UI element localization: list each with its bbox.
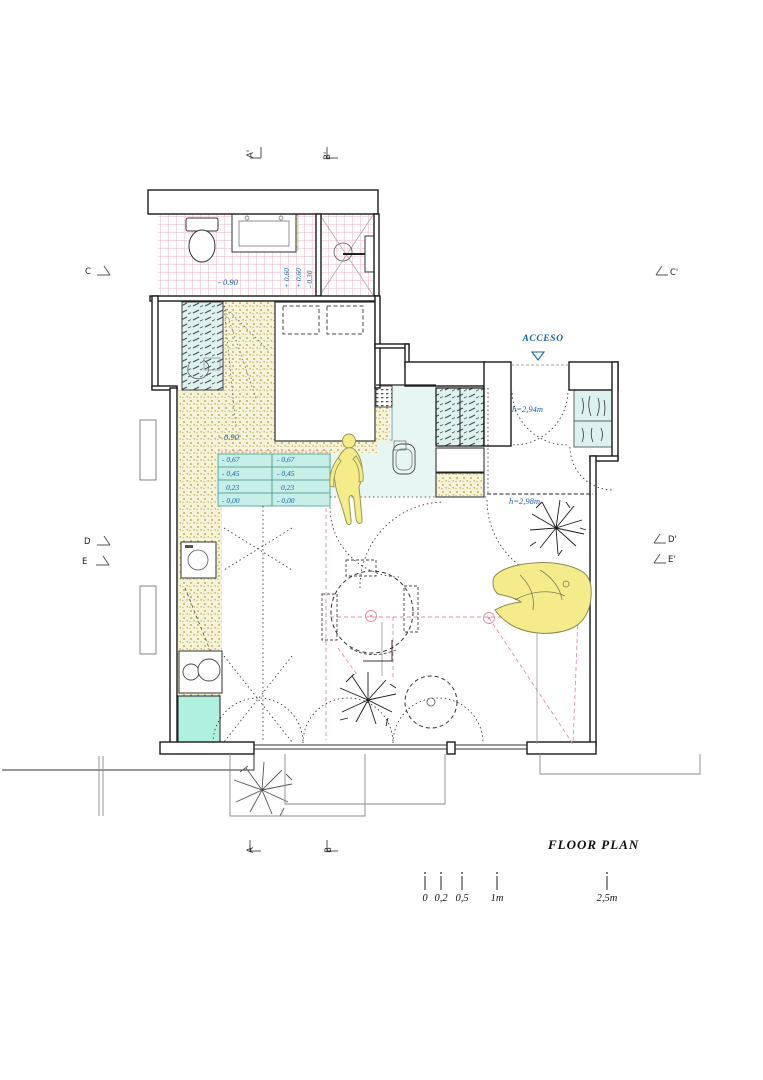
step-level: - 0,00 xyxy=(222,496,240,506)
page-title: FLOOR PLAN xyxy=(548,837,639,853)
step-level: - 0,67 xyxy=(222,455,240,465)
center-dot xyxy=(370,615,373,618)
window-lines xyxy=(254,745,527,749)
glazed-cabinet xyxy=(436,388,484,472)
terrace-step-edge xyxy=(2,754,254,770)
floor-plan-drawing xyxy=(0,0,763,1080)
step-level: - 0,45 xyxy=(222,469,240,479)
bathroom-floor-level: - 0.90 xyxy=(218,277,238,287)
scale-label-02: 0,2 xyxy=(431,893,451,904)
shower-level-1: + 0.60 xyxy=(282,262,292,288)
washing-machine xyxy=(181,542,216,578)
pillow xyxy=(327,306,363,334)
section-label-c: C xyxy=(85,267,91,277)
height-entry-hall: h=2,94m xyxy=(512,404,543,414)
pillow xyxy=(283,306,319,334)
scale-bar xyxy=(424,872,608,890)
plant-terrace xyxy=(234,762,292,816)
step-level: 0,23 xyxy=(226,483,239,493)
vanity-sink xyxy=(232,214,296,252)
steps-top-level: - 0.90 xyxy=(219,432,239,442)
plant-living-bottom xyxy=(340,672,396,726)
entry-closet xyxy=(574,390,612,447)
section-label-b: B xyxy=(324,839,334,853)
left-window-tabs xyxy=(140,420,156,654)
dot-grid-element xyxy=(376,386,392,407)
section-label-e: E xyxy=(82,557,87,567)
bracket-mark xyxy=(363,640,392,661)
scale-label-0: 0 xyxy=(419,893,431,904)
shower-level-2: + 0.60 xyxy=(294,262,304,288)
terrace-outlines xyxy=(99,754,700,816)
sofa-crocodile-highlight xyxy=(493,562,591,633)
section-label-b-prime: B' xyxy=(323,144,333,160)
section-label-c-prime: C' xyxy=(670,268,678,278)
step-level: - 0,67 xyxy=(277,455,295,465)
step-level: 0,23 xyxy=(281,483,294,493)
acceso-label: ACCESO xyxy=(516,334,570,344)
step-level: - 0,45 xyxy=(277,469,295,479)
glazed-wardrobe xyxy=(182,302,223,390)
section-label-a: A xyxy=(246,839,256,853)
dining-table xyxy=(322,560,418,655)
section-label-d: D xyxy=(84,537,91,547)
shower-level-3: - 0.30 xyxy=(305,262,315,288)
floor-plan: ACCESO h=2,94m h=2,98m - 0.90 + 0.60 + 0… xyxy=(0,0,763,1080)
step-level: - 0,00 xyxy=(277,496,295,506)
height-living-room: h=2,98m xyxy=(509,496,540,506)
scale-label-05: 0,5 xyxy=(452,893,472,904)
section-label-e-prime: E' xyxy=(668,555,676,565)
scale-label-25m: 2,5m xyxy=(593,893,621,904)
section-label-d-prime: D' xyxy=(668,535,677,545)
thin-guide-lines xyxy=(382,610,537,744)
center-dot xyxy=(488,617,491,620)
section-label-a-prime: A' xyxy=(246,142,256,158)
counter-sink-unit xyxy=(179,651,222,693)
acceso-arrow-icon xyxy=(532,352,544,360)
bed xyxy=(275,298,375,441)
pouf xyxy=(405,676,457,728)
plant-living-right xyxy=(530,500,586,556)
scale-label-1m: 1m xyxy=(487,893,507,904)
